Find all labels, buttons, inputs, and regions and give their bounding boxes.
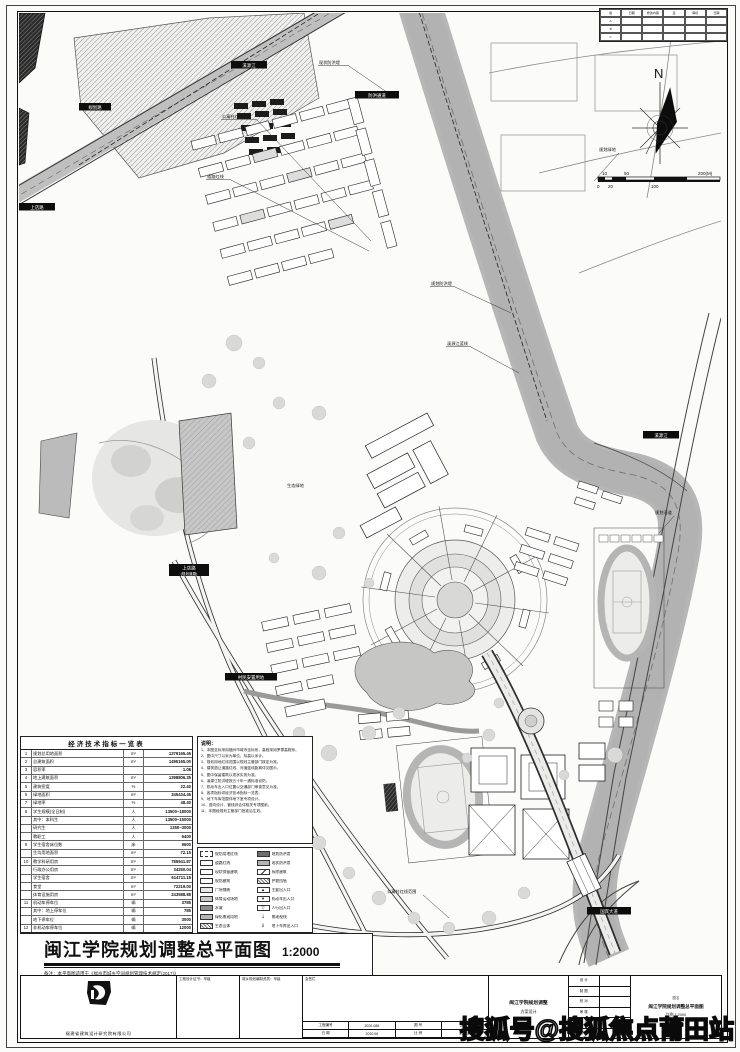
note-line: 10、竖向设计、管线综合详相关专项图纸。	[201, 803, 309, 808]
svg-text:50: 50	[624, 171, 630, 176]
legend-swatch	[257, 878, 270, 884]
legend-item: 绿化景观用地	[200, 913, 254, 921]
note-line: 11、本图经规划主管部门批准后生效。	[201, 809, 309, 814]
role-row: 校 对	[569, 997, 630, 1008]
indicator-row: 11机动车停车位辆3785	[21, 900, 192, 908]
legend-swatch	[257, 851, 270, 857]
legend-item: 水域	[200, 904, 254, 912]
note-line: 2、图中尺寸以米为单位，标高以米计。	[201, 754, 309, 759]
revision-cell: A	[600, 17, 621, 25]
indicator-row: 9学生宿舍床位数床9600	[21, 841, 192, 849]
company-cell: 福建省建筑设计研究院有限公司	[21, 976, 177, 1038]
indicator-row: 学生宿舍m²614711.18	[21, 875, 192, 883]
legend-swatch	[200, 851, 213, 857]
legend-item: 生态山体	[200, 922, 254, 930]
svg-text:防洪通道: 防洪通道	[368, 92, 386, 99]
indicators-table: 经济技术指标一览表 1规划总用地面积m²1379165.46 2总建筑面积m²1…	[20, 736, 193, 933]
legend-item: ⇓ 地下车库出入口	[257, 922, 311, 930]
svg-text:上店路: 上店路	[182, 564, 196, 571]
info-cell: 2020-086	[349, 1022, 395, 1030]
company-name: 福建省建筑设计研究院有限公司	[66, 1031, 132, 1037]
note-line: 4、建筑退让道路红线、河道蓝线距离详见图示。	[201, 766, 309, 771]
revision-cell: B	[600, 25, 621, 33]
drawing-title: 闽江学院规划调整总平面图	[44, 936, 272, 962]
svg-text:100: 100	[651, 184, 659, 189]
indicator-row: 地下停车位辆3000	[21, 916, 192, 924]
indicator-row: 其中：本科生人13500~15000	[21, 817, 192, 825]
drawing-title-block: 闽江学院规划调整总平面图 1:2000 备注：本平面图适用于《福州市城乡空间规划…	[20, 933, 373, 975]
legend-swatch	[200, 905, 213, 911]
svg-text:村民安置用地: 村民安置用地	[238, 674, 265, 681]
watermark: 搜狐号@搜狐焦点莆田站	[460, 1010, 734, 1046]
svg-text:规划路: 规划路	[88, 104, 102, 111]
indicator-row: 3容积率1.08	[21, 767, 192, 775]
indicator-row: 其中：地上停车位辆785	[21, 908, 192, 916]
drawing-scale: 1:2000	[282, 945, 319, 959]
svg-text:上店路: 上店路	[30, 204, 44, 211]
southwest-buildings	[262, 603, 370, 718]
note-line: 9、地下车库范围详地下室专项设计。	[201, 797, 309, 802]
note-line: 8、各项指标详经济技术指标一览表。	[201, 791, 309, 796]
north-label: N	[654, 66, 663, 81]
revision-cell: 日期	[621, 9, 642, 17]
legend: 规划用地红线 道路红线 现状保留建筑 规划建筑	[197, 847, 313, 933]
legend-item: ▽ 人行出入口	[257, 904, 311, 912]
svg-text:溪源江蓝线: 溪源江蓝线	[447, 340, 469, 347]
legend-swatch: ▼	[257, 896, 270, 902]
svg-text:公寓村红线范围: 公寓村红线范围	[387, 888, 416, 895]
indicators-title: 经济技术指标一览表	[21, 737, 192, 750]
note-line: 7、机动车出入口位置以交通部门审查意见为准。	[201, 785, 309, 790]
legend-swatch: ▲	[257, 887, 270, 893]
revision-cell	[642, 25, 663, 33]
indicator-row: 食堂m²72219.00	[21, 883, 192, 891]
legend-item: 规划建筑	[200, 877, 254, 885]
revision-cell	[685, 25, 706, 33]
legend-item: 规划用地红线	[200, 850, 254, 858]
legend-item: 体育运动场地	[200, 895, 254, 903]
legend-item: ▲ 主要出入口	[257, 886, 311, 894]
role-row: 制 图	[569, 987, 630, 998]
indicator-row: 10教学科研用房m²785941.87	[21, 858, 192, 866]
revision-cell	[621, 25, 642, 33]
svg-text:道路红线: 道路红线	[207, 173, 225, 180]
svg-text:200(M): 200(M)	[698, 171, 713, 176]
campus-lake	[355, 642, 475, 711]
legend-swatch: ▽	[257, 905, 270, 911]
indicator-row: 体育设施用房m²243588.88	[21, 891, 192, 899]
notes-title: 说明：	[201, 740, 309, 747]
legend-item: 现状保留建筑	[200, 868, 254, 876]
legend-item: 规划防洪堤	[257, 850, 311, 858]
note-line: 5、图中保留建筑以现状实测为准。	[201, 773, 309, 778]
svg-text:规划绿地: 规划绿地	[599, 146, 617, 153]
revision-cell: 修改内容	[642, 9, 663, 17]
dark-hatched-parcels	[19, 13, 45, 165]
indicator-row: 5建筑密度%22.40	[21, 783, 192, 791]
legend-swatch	[200, 914, 213, 920]
legend-swatch	[200, 896, 213, 902]
svg-text:国宾大道: 国宾大道	[600, 908, 618, 915]
revision-cell	[685, 17, 706, 25]
svg-text:规划河道: 规划河道	[655, 509, 673, 516]
north-needle	[650, 86, 685, 157]
svg-text:现状防洪堤: 现状防洪堤	[319, 59, 341, 66]
legend-item: 护坡挡墙	[257, 877, 311, 885]
info-cell: 日 期	[303, 1030, 349, 1038]
info-cell: 比 例	[396, 1030, 442, 1038]
company-logo	[84, 978, 114, 1008]
scale-bar: 10 50 200(M) 0 20 100	[596, 168, 726, 190]
notes-box: 说明： 1、本图坐标采用福州市城市坐标系，高程采用罗零高程系。2、图中尺寸以米为…	[197, 736, 313, 844]
legend-swatch	[200, 887, 213, 893]
north-arrow: N	[620, 66, 700, 170]
legend-swatch	[200, 878, 213, 884]
legend-item: ▼ 机动车出入口	[257, 895, 311, 903]
legend-swatch: ⇓	[257, 923, 270, 929]
svg-text:公寓村红线范围: 公寓村红线范围	[222, 113, 251, 120]
svg-text:规划防洪堤: 规划防洪堤	[431, 280, 453, 287]
revision-cell	[685, 33, 706, 41]
title-rule	[44, 963, 340, 966]
revision-cell: 日期	[706, 9, 727, 17]
revision-cell	[621, 33, 642, 41]
revision-cell	[642, 17, 663, 25]
revision-cell: 签	[663, 9, 684, 17]
indicator-row: 研究生人1350~3000	[21, 825, 192, 833]
revision-cell: C	[600, 33, 621, 41]
revision-cell	[642, 33, 663, 41]
indicator-row: 12非机动车停车位辆12000	[21, 925, 192, 932]
legend-swatch: ⇣	[257, 914, 270, 920]
legend-swatch	[200, 869, 213, 875]
legend-item: 道路红线	[200, 859, 254, 867]
legend-swatch	[257, 869, 270, 875]
project-name: 闽江学院规划调整	[509, 999, 547, 1006]
indicator-row: 2总建筑面积m²1495165.00	[21, 758, 192, 766]
revision-cell	[663, 17, 684, 25]
note-line: 3、规划用地红线范围以规划主管部门核定为准。	[201, 760, 309, 765]
svg-text:生态绿地: 生态绿地	[287, 482, 305, 488]
revision-cell	[621, 17, 642, 25]
title-rule2	[44, 967, 340, 968]
svg-text:0: 0	[597, 184, 600, 189]
certificate-cell-2: 城乡规划编制资质：甲级	[240, 976, 303, 1038]
revision-cell	[706, 17, 727, 25]
svg-text:溪源江: 溪源江	[654, 432, 668, 439]
legend-swatch	[200, 923, 213, 929]
legend-item: 现状防洪堤	[257, 859, 311, 867]
legend-swatch	[257, 860, 270, 866]
revision-cell: 版	[600, 9, 621, 17]
info-cell: 工程编号	[303, 1022, 349, 1030]
indicator-row: 1规划总用地面积m²1379165.46	[21, 750, 192, 758]
role-row: 设 计	[569, 976, 630, 987]
legend-item: ⇣ 景观视线	[257, 913, 311, 921]
central-teaching-halls	[328, 413, 465, 538]
west-hill-park	[39, 413, 237, 543]
drawing-sheet: 现状防洪堤 公寓村红线范围 道路红线 规划防洪堤 溪源江蓝线 规划绿地 规划河道…	[0, 0, 740, 1052]
certificate-cell-1: 工程设计证书：甲级	[177, 976, 240, 1038]
indicator-row: 8学生规模(全日制)人13500~18000	[21, 808, 192, 816]
svg-text:10: 10	[602, 171, 608, 176]
info-cell: 图 号	[396, 1022, 442, 1030]
svg-text:(规划道路): (规划道路)	[181, 571, 198, 576]
revision-cell: 审核	[685, 9, 706, 17]
revision-table: 版日期修改内容签审核日期ABC	[599, 8, 728, 42]
note-line: 6、溪源江防洪堤按五十年一遇标准设防。	[201, 779, 309, 784]
svg-text:溪源江: 溪源江	[242, 62, 256, 69]
indicator-row: 4地上建筑面积m²1398806.35	[21, 775, 192, 783]
revision-cell	[706, 25, 727, 33]
indicator-row: 生均用地面积m²72.15	[21, 850, 192, 858]
legend-swatch	[200, 860, 213, 866]
revision-cell	[663, 33, 684, 41]
legend-item: 拆除建筑	[257, 868, 311, 876]
revision-cell	[706, 33, 727, 41]
indicator-row: 教职工人6400	[21, 833, 192, 841]
indicator-row: 行政办公用房m²34250.04	[21, 866, 192, 874]
note-line: 1、本图坐标采用福州市城市坐标系，高程采用罗零高程系。	[201, 748, 309, 753]
info-cell: 2020.06	[349, 1030, 395, 1038]
indicator-row: 6绿地面积m²345434.46	[21, 792, 192, 800]
revision-cell	[663, 25, 684, 33]
svg-text:20: 20	[608, 184, 614, 189]
indicator-row: 7绿地率%48.40	[21, 800, 192, 808]
legend-item: 广场铺装	[200, 886, 254, 894]
